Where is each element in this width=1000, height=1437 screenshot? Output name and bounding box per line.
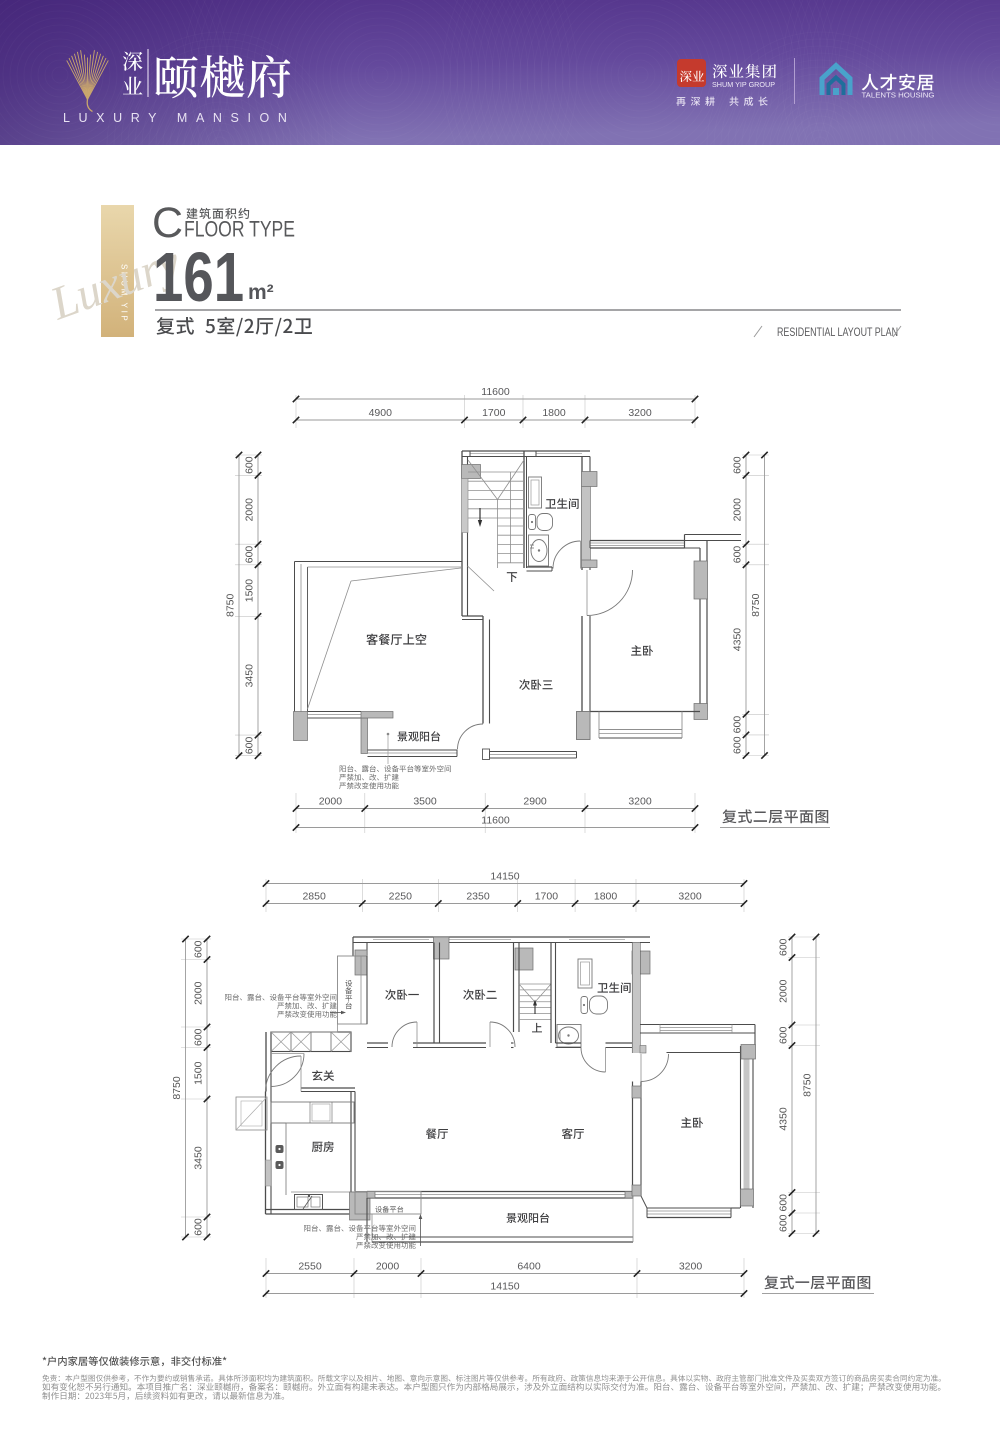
svg-text:3200: 3200 — [679, 1261, 703, 1273]
svg-text:3450: 3450 — [244, 664, 256, 688]
svg-text:8750: 8750 — [225, 594, 237, 618]
svg-text:1500: 1500 — [193, 1061, 205, 1085]
svg-text:600: 600 — [778, 1026, 790, 1044]
svg-text:600: 600 — [732, 546, 744, 564]
svg-text:2000: 2000 — [376, 1261, 400, 1273]
svg-text:TALENTS HOUSING: TALENTS HOUSING — [862, 91, 935, 100]
svg-text:600: 600 — [778, 938, 790, 956]
svg-text:600: 600 — [778, 1194, 790, 1212]
svg-text:2900: 2900 — [523, 796, 547, 808]
svg-text:1700: 1700 — [482, 407, 506, 419]
svg-text:600: 600 — [778, 1214, 790, 1232]
svg-text:600: 600 — [732, 456, 744, 474]
svg-text:600: 600 — [732, 716, 744, 734]
svg-text:2000: 2000 — [193, 981, 205, 1005]
svg-text:2000: 2000 — [244, 498, 256, 522]
svg-text:1700: 1700 — [535, 891, 559, 903]
svg-text:3200: 3200 — [628, 407, 652, 419]
svg-text:2250: 2250 — [389, 891, 413, 903]
svg-text:11600: 11600 — [481, 386, 510, 398]
svg-text:RESIDENTIAL LAYOUT PLAN: RESIDENTIAL LAYOUT PLAN — [777, 327, 898, 339]
svg-text:8750: 8750 — [171, 1076, 183, 1100]
svg-text:1500: 1500 — [244, 579, 256, 603]
svg-text:600: 600 — [244, 456, 256, 474]
svg-text:3500: 3500 — [413, 796, 437, 808]
svg-text:2850: 2850 — [302, 891, 326, 903]
svg-text:3200: 3200 — [678, 891, 702, 903]
svg-text:LUXURY MANSION: LUXURY MANSION — [63, 111, 295, 125]
svg-text:600: 600 — [732, 736, 744, 754]
svg-text:8750: 8750 — [802, 1073, 814, 1097]
svg-text:161: 161 — [153, 239, 244, 317]
svg-text:600: 600 — [193, 1218, 205, 1236]
svg-text:3450: 3450 — [193, 1146, 205, 1170]
svg-text:8750: 8750 — [750, 593, 762, 617]
svg-text:SHUM YIP GROUP: SHUM YIP GROUP — [712, 80, 775, 89]
svg-text:600: 600 — [244, 736, 256, 754]
svg-text:600: 600 — [244, 546, 256, 564]
svg-text:2000: 2000 — [732, 498, 744, 522]
svg-text:14150: 14150 — [490, 871, 519, 883]
svg-text:11600: 11600 — [481, 815, 510, 827]
svg-text:600: 600 — [193, 940, 205, 958]
svg-text:2000: 2000 — [778, 979, 790, 1003]
svg-text:4900: 4900 — [369, 407, 393, 419]
svg-text:m²: m² — [248, 281, 274, 304]
svg-text:2000: 2000 — [319, 796, 343, 808]
svg-text:1800: 1800 — [594, 891, 618, 903]
svg-text:3200: 3200 — [628, 796, 652, 808]
svg-text:4350: 4350 — [778, 1107, 790, 1131]
svg-text:1800: 1800 — [542, 407, 566, 419]
svg-text:600: 600 — [193, 1028, 205, 1046]
svg-text:2350: 2350 — [466, 891, 490, 903]
svg-text:2550: 2550 — [298, 1261, 322, 1273]
svg-text:14150: 14150 — [490, 1281, 519, 1293]
svg-text:6400: 6400 — [517, 1261, 541, 1273]
svg-text:4350: 4350 — [732, 628, 744, 652]
